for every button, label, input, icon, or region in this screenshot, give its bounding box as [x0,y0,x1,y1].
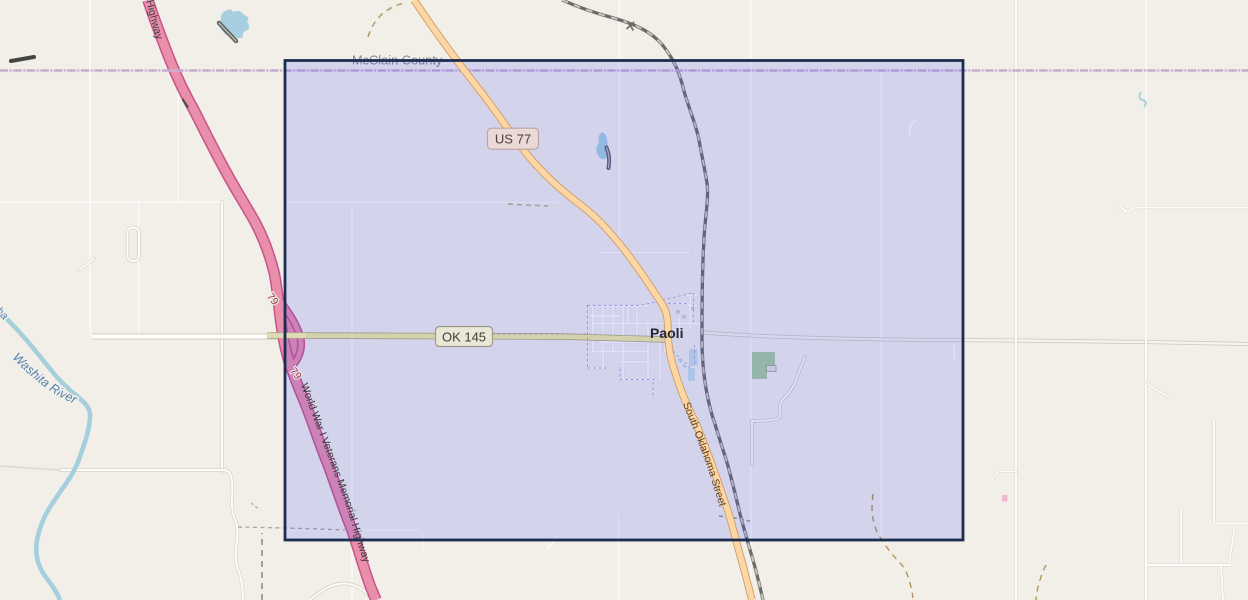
svg-text:Paoli: Paoli [650,325,683,341]
svg-text:US 77: US 77 [495,132,531,147]
svg-text:OK 145: OK 145 [442,330,486,345]
